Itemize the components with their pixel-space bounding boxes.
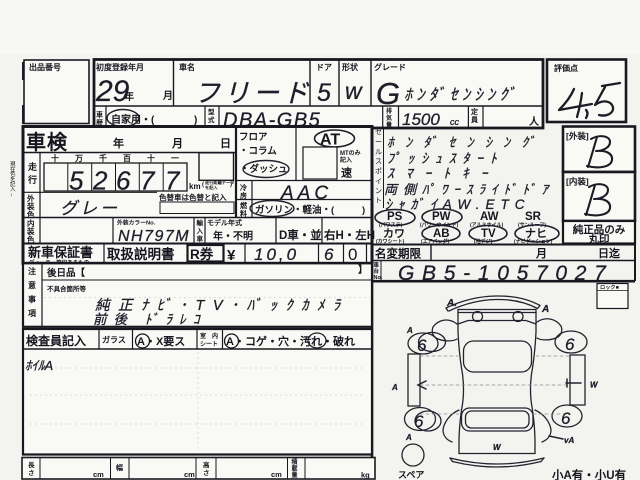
svg-text:cm: cm (93, 470, 104, 479)
svg-text:cm: cm (184, 470, 195, 479)
svg-text:フリード: フリード (194, 78, 312, 108)
svg-text:行: 行 (27, 174, 37, 185)
svg-text:フロア: フロア (239, 132, 268, 143)
svg-text:ドア: ドア (316, 63, 332, 72)
svg-text:検査員記入: 検査員記入 (26, 333, 86, 348)
svg-text:7: 7 (165, 166, 181, 196)
svg-text:ｽﾏｰﾄｷｰ: ｽﾏｰﾄｷｰ (387, 166, 500, 181)
svg-text:車名: 車名 (179, 62, 195, 72)
svg-text:日: 日 (220, 137, 231, 150)
svg-text:車: 車 (96, 110, 103, 119)
svg-text:cm: cm (271, 470, 282, 479)
svg-text:w: w (345, 78, 363, 104)
svg-text:イ: イ (375, 179, 382, 186)
svg-text:小A有・小U有: 小A有・小U有 (551, 468, 627, 480)
svg-text:項: 項 (28, 309, 37, 318)
svg-text:モデル年式: モデル年式 (207, 218, 242, 227)
svg-text:燃: 燃 (239, 201, 248, 210)
svg-text:千: 千 (99, 153, 107, 163)
svg-text:新車保証書: 新車保証書 (28, 245, 93, 260)
svg-text:右H・左H: 右H・左H (323, 228, 375, 242)
svg-text:万: 万 (74, 154, 83, 163)
svg-text:グレー: グレー (60, 199, 120, 218)
svg-text:6: 6 (417, 336, 427, 355)
svg-text:積: 積 (291, 458, 299, 466)
svg-text:vA: vA (564, 436, 574, 445)
svg-text:冷: 冷 (240, 183, 247, 192)
svg-text:幅: 幅 (116, 463, 123, 472)
svg-text:ン: ン (375, 188, 382, 195)
svg-text:ガラス: ガラス (102, 335, 126, 345)
svg-text:評価点: 評価点 (554, 63, 578, 73)
svg-text:人: 人 (529, 115, 540, 128)
svg-text:km: km (189, 182, 201, 191)
svg-text:5: 5 (317, 79, 331, 107)
svg-text:年・不明: 年・不明 (213, 230, 253, 243)
svg-text:ル: ル (375, 149, 382, 156)
svg-text:ス: ス (375, 158, 382, 166)
svg-text:量: 量 (292, 471, 298, 479)
svg-text:さ: さ (203, 469, 210, 477)
svg-text:ー: ー (375, 139, 382, 146)
svg-text:6: 6 (565, 335, 575, 354)
svg-text:ﾎｲﾙA: ﾎｲﾙA (25, 358, 53, 373)
svg-text:房: 房 (240, 191, 247, 200)
svg-text:名変期限: 名変期限 (375, 247, 421, 261)
svg-text:気: 気 (386, 114, 392, 122)
svg-text:記入: 記入 (340, 156, 352, 164)
svg-text:↓: ↓ (10, 192, 13, 198)
svg-text:R券: R券 (190, 246, 214, 262)
svg-text:形状: 形状 (342, 62, 359, 72)
svg-text:10,0: 10,0 (254, 245, 299, 264)
svg-text:ﾎﾝﾀﾞｾﾝｼﾝｸﾞ: ﾎﾝﾀﾞｾﾝｼﾝｸﾞ (404, 86, 520, 104)
svg-text:・コラム: ・コラム (239, 146, 277, 157)
svg-text:量: 量 (386, 121, 392, 129)
svg-text:さ: さ (28, 469, 35, 477)
svg-text:A: A (541, 304, 549, 315)
svg-text:百: 百 (123, 154, 131, 163)
svg-text:6: 6 (116, 166, 131, 196)
svg-text:A: A (405, 433, 412, 442)
svg-text:ロック■: ロック■ (600, 283, 619, 291)
svg-text:月: 月 (162, 90, 173, 102)
svg-text:両側ﾊﾟﾜｰｽﾗｲﾄﾞﾄﾞｱ: 両側ﾊﾟﾜｰｽﾗｲﾄﾞﾄﾞｱ (384, 182, 554, 197)
svg-text:載: 載 (292, 465, 298, 473)
svg-text:前後 ﾄﾞﾗﾚｺ: 前後 ﾄﾞﾗﾚｺ (93, 312, 207, 327)
svg-text:NH797M: NH797M (118, 228, 190, 245)
svg-text:料: 料 (240, 209, 247, 218)
svg-text:6: 6 (414, 412, 424, 431)
svg-text:A.: A. (446, 298, 457, 309)
svg-text:AAC: AAC (280, 183, 332, 204)
svg-text:員: 員 (470, 115, 479, 124)
svg-text:): ) (362, 205, 365, 216)
svg-text:グレード: グレード (374, 62, 406, 72)
svg-text:cc: cc (450, 117, 460, 127)
svg-text:を記入: を記入 (205, 184, 218, 191)
svg-text:6: 6 (561, 409, 571, 428)
svg-text:PW: PW (432, 211, 451, 223)
svg-text:長: 長 (28, 460, 35, 469)
svg-text:後日品【: 後日品【 (47, 267, 86, 279)
svg-text:1500: 1500 (402, 110, 440, 129)
svg-text:意: 意 (28, 280, 36, 290)
svg-text:6: 6 (324, 245, 334, 264)
svg-text:年: 年 (113, 136, 124, 150)
svg-text:取扱説明書: 取扱説明書 (107, 246, 175, 262)
svg-text:高: 高 (203, 460, 210, 469)
svg-text:¥: ¥ (227, 247, 236, 264)
svg-text:): ) (194, 115, 197, 126)
svg-text:G: G (376, 76, 400, 111)
svg-text:入: 入 (196, 227, 204, 235)
svg-text:一: 一 (171, 154, 179, 163)
svg-text:出品番号: 出品番号 (29, 62, 61, 72)
svg-text:台: 台 (374, 267, 380, 275)
svg-text:2: 2 (92, 166, 108, 196)
svg-text:5: 5 (69, 166, 84, 196)
svg-text:車: 車 (374, 261, 380, 269)
svg-text:十: 十 (51, 153, 59, 163)
svg-text:走: 走 (27, 161, 37, 172)
svg-text:ﾎﾝﾀﾞｾﾝｼﾝｸﾞ: ﾎﾝﾀﾞｾﾝｼﾝｸﾞ (387, 135, 547, 150)
svg-text:車: 車 (197, 234, 204, 243)
svg-text:注: 注 (28, 266, 36, 276)
svg-text:AW: AW (480, 211, 499, 223)
svg-text:輸: 輸 (197, 218, 204, 227)
svg-text:A・コゲ・穴・汚れ・破れ: A・コゲ・穴・汚れ・破れ (226, 334, 355, 348)
svg-text:ｼｬｶﾞｲAW.ETC: ｼｬｶﾞｲAW.ETC (385, 197, 531, 212)
svg-text:月: 月 (535, 247, 547, 260)
svg-text:ト: ト (375, 198, 382, 205)
svg-text:0: 0 (348, 245, 357, 264)
svg-text:定: 定 (471, 107, 478, 116)
svg-text:D車・並: D車・並 (279, 228, 322, 242)
svg-text:排: 排 (386, 107, 392, 115)
svg-text:月: 月 (171, 137, 183, 150)
svg-text:室 内: 室 内 (200, 332, 218, 340)
svg-text:MTのみ: MTのみ (340, 150, 361, 157)
svg-text:日迄: 日迄 (598, 246, 620, 260)
svg-text:[内装]: [内装] (566, 177, 589, 187)
svg-text:A: A (391, 383, 398, 392)
svg-text:A: A (406, 326, 413, 335)
svg-text:): ) (230, 182, 232, 188)
svg-text:SR: SR (525, 211, 542, 223)
svg-text:式: 式 (208, 115, 215, 124)
svg-text:初度登録年月: 初度登録年月 (96, 62, 144, 72)
svg-text:[外装]: [外装] (566, 131, 589, 141)
svg-text:セ: セ (375, 128, 382, 136)
svg-text:ガソリン・軽油・(: ガソリン・軽油・( (255, 204, 335, 216)
svg-text:A・X要ス: A・X要ス (137, 335, 185, 348)
svg-text:(: ( (202, 182, 204, 188)
svg-text:7: 7 (140, 166, 156, 196)
svg-text:外装カラーNo.: 外装カラーNo. (117, 219, 156, 227)
svg-text:速: 速 (341, 166, 352, 180)
svg-text:不具合箇所等: 不具合箇所等 (47, 284, 87, 293)
svg-text:ﾌﾟｯｼｭｽﾀｰﾄ: ﾌﾟｯｼｭｽﾀｰﾄ (387, 151, 504, 166)
svg-text:十: 十 (147, 153, 155, 163)
svg-text:車検: 車検 (26, 130, 68, 154)
svg-text:スペア: スペア (398, 470, 424, 480)
svg-text:シート: シート (200, 341, 218, 348)
svg-text:kg: kg (361, 471, 370, 480)
svg-text:事: 事 (28, 294, 36, 304)
svg-text:型: 型 (208, 107, 215, 116)
svg-text:ポ: ポ (375, 168, 382, 176)
svg-text:PS: PS (387, 211, 403, 223)
svg-text:年: 年 (124, 90, 134, 103)
svg-text:色替車は色替と記入: 色替車は色替と記入 (159, 192, 227, 202)
svg-text:】: 】 (358, 264, 368, 276)
